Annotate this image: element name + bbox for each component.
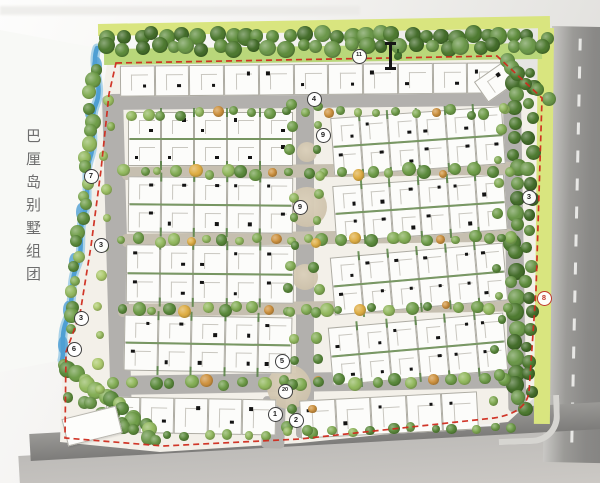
plan-marker-20: 20 <box>278 384 293 399</box>
boundary-layer <box>0 0 600 483</box>
plan-marker-11: 11 <box>352 49 367 64</box>
plan-marker-8: 8 <box>537 291 552 306</box>
plan-marker-1: 1 <box>268 407 283 422</box>
plan-marker-5: 5 <box>275 354 290 369</box>
site-plan-photo: 1149938733652012 巴厘岛别墅组团 <box>0 0 600 483</box>
plan-marker-7: 7 <box>84 169 99 184</box>
plan-marker-3: 3 <box>74 311 89 326</box>
plan-marker-6: 6 <box>67 342 82 357</box>
plan-marker-3: 3 <box>94 238 109 253</box>
plan-marker-4: 4 <box>307 92 322 107</box>
plan-marker-9: 9 <box>316 128 331 143</box>
site-title: 巴厘岛别墅组团 <box>22 128 43 289</box>
red-dashed-boundary <box>65 56 542 446</box>
plan-marker-9: 9 <box>293 200 308 215</box>
plan-marker-3: 3 <box>522 190 537 205</box>
plan-marker-2: 2 <box>289 413 304 428</box>
